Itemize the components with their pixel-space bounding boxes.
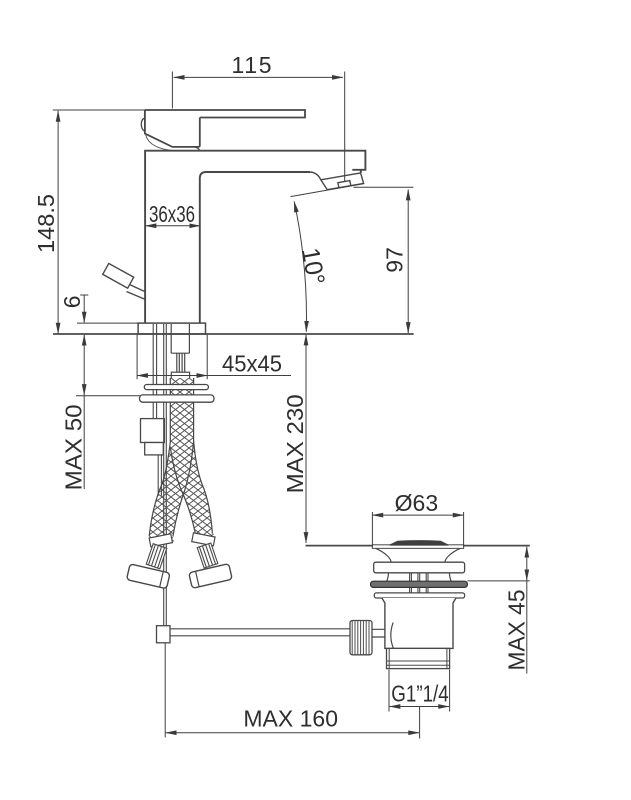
svg-text:6: 6 bbox=[59, 295, 85, 308]
svg-text:MAX 45: MAX 45 bbox=[504, 590, 530, 671]
svg-text:MAX 230: MAX 230 bbox=[282, 394, 308, 493]
svg-text:36x36: 36x36 bbox=[149, 201, 195, 227]
svg-text:MAX 160: MAX 160 bbox=[243, 706, 338, 732]
svg-text:148.5: 148.5 bbox=[33, 194, 59, 253]
svg-text:MAX 50: MAX 50 bbox=[61, 404, 87, 490]
svg-text:45x45: 45x45 bbox=[222, 351, 282, 377]
svg-text:10°: 10° bbox=[296, 246, 330, 287]
svg-text:97: 97 bbox=[382, 247, 408, 273]
svg-text:G1”1/4: G1”1/4 bbox=[391, 681, 449, 707]
svg-text:115: 115 bbox=[232, 52, 272, 78]
svg-text:Ø63: Ø63 bbox=[395, 490, 439, 516]
